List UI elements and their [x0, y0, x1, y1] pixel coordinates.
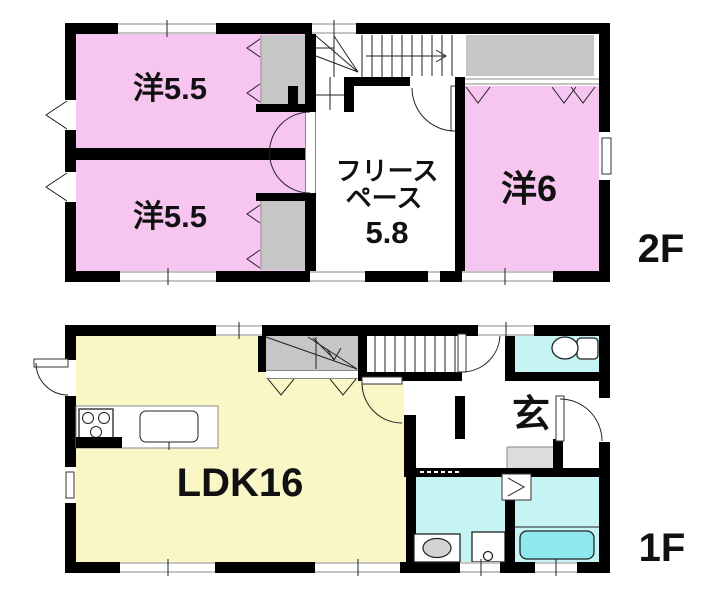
- window: [428, 271, 440, 282]
- 2f-free-space-label-line2: ペース: [346, 183, 423, 213]
- 1f-toilet-bottom-wall: [505, 372, 610, 381]
- casement-window: [46, 172, 76, 202]
- 2f-west-room-2-label: 洋5.5: [133, 199, 207, 234]
- 2f-free-space-label-line1: フリース: [336, 156, 439, 186]
- door-leaf: [34, 359, 68, 367]
- 2f-west-room-3-label: 洋6: [501, 168, 557, 209]
- toilet-fixture: [552, 337, 598, 359]
- 1f-bathroom: [502, 474, 599, 562]
- kitchen-counter: [76, 406, 218, 450]
- kitchen-wall-stub: [76, 437, 122, 448]
- 2f-free-space-size: 5.8: [365, 215, 408, 250]
- casement-window: [46, 100, 76, 130]
- floor-plan-1f: LDK16 玄 1F: [34, 322, 685, 576]
- 2f-closet-2-sidewall: [305, 193, 316, 271]
- washing-machine-pan: [472, 532, 505, 562]
- 2f-room-divider-wall: [65, 148, 311, 160]
- 2f-stair-wall: [344, 77, 410, 86]
- door-leaf: [458, 334, 466, 372]
- 2f-closet-1-floor: [262, 35, 305, 104]
- door-leaf: [362, 377, 402, 384]
- bathtub: [520, 531, 594, 559]
- 2f-west-room-3: [455, 35, 599, 271]
- window: [599, 132, 611, 180]
- door-swing-arc: [36, 363, 68, 395]
- window: [310, 271, 365, 282]
- floor-plan-svg: 洋5.5 洋5.5 フリース ペース 5.8 洋6 2F: [0, 0, 713, 600]
- 2f-closet-1-sidewall: [305, 34, 316, 112]
- door-leaf: [556, 396, 564, 441]
- 1f-entrance-wall-2: [553, 439, 563, 470]
- 1f-entrance-wall: [455, 396, 465, 439]
- 1f-floor-label: 1F: [639, 526, 686, 570]
- 1f-hall-wall: [404, 415, 416, 477]
- 2f-west-room-3-wall: [455, 77, 465, 271]
- vanity-sink: [414, 534, 460, 562]
- 2f-closet-2-floor: [262, 201, 305, 270]
- 2f-wall-stub: [288, 104, 316, 112]
- 1f-stair-sidewall: [358, 325, 367, 372]
- 1f-side-door: [34, 359, 76, 396]
- 1f-entrance-label: 玄: [512, 394, 550, 436]
- 2f-wall-stub: [344, 86, 354, 112]
- entrance-step: [507, 447, 553, 470]
- floor-plan-image: 洋5.5 洋5.5 フリース ペース 5.8 洋6 2F: [0, 0, 713, 600]
- 2f-closet-3-floor: [466, 35, 594, 76]
- 2f-floor-label: 2F: [638, 227, 685, 271]
- 1f-ldk-label: LDK16: [177, 461, 304, 505]
- floor-plan-2f: 洋5.5 洋5.5 フリース ペース 5.8 洋6 2F: [46, 20, 684, 285]
- window: [65, 467, 76, 503]
- 2f-west-room-1-label: 洋5.5: [133, 71, 207, 106]
- bath-folding-door: [502, 474, 531, 500]
